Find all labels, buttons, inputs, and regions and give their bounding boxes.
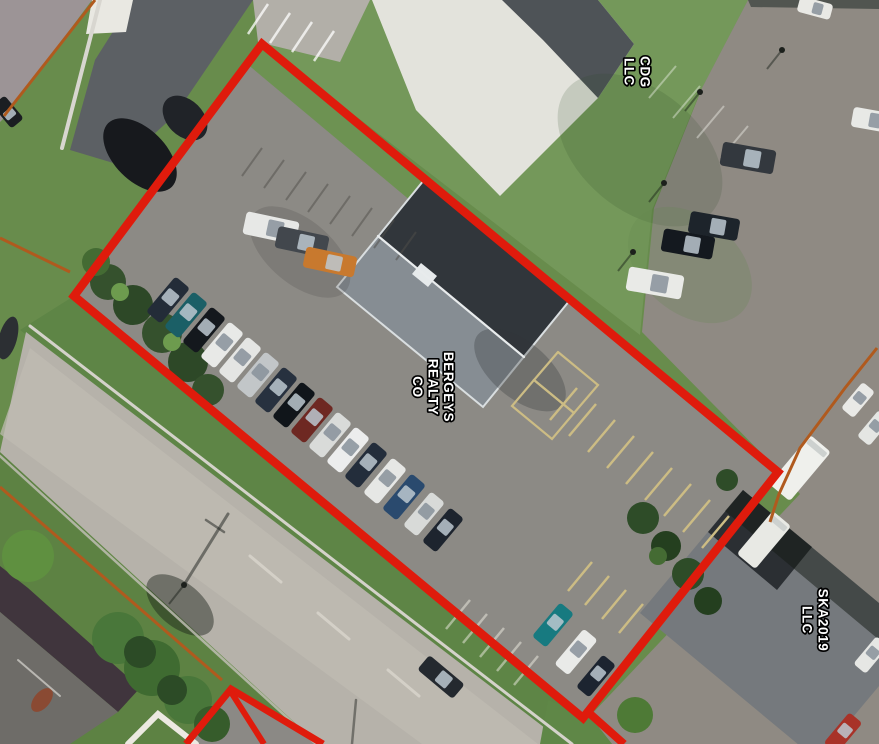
light-pole <box>630 249 636 255</box>
tree <box>716 469 738 491</box>
tree <box>694 587 722 615</box>
tree <box>111 283 129 301</box>
tree <box>2 530 54 582</box>
parcel-label-line: LLC <box>800 606 815 634</box>
parcel-label-cdg-llc: CDG LLC <box>622 56 653 88</box>
tree <box>627 502 659 534</box>
tree <box>617 697 653 733</box>
parcel-label-line: CO <box>410 376 425 397</box>
tree <box>649 547 667 565</box>
parcel-label-line: REALTY <box>426 359 441 416</box>
light-pole <box>661 180 667 186</box>
map-stage: CDG LLC BERGEYS REALTY CO SKA2019 LLC <box>0 0 879 744</box>
light-pole <box>779 47 785 53</box>
aerial-photo: CDG LLC BERGEYS REALTY CO SKA2019 LLC <box>0 0 879 744</box>
tree <box>124 636 156 668</box>
parcel-label-line: CDG <box>638 56 653 88</box>
tree <box>157 675 187 705</box>
parcel-label-line: SKA2019 <box>816 589 831 652</box>
light-pole <box>181 582 187 588</box>
light-pole <box>697 89 703 95</box>
parcel-label-line: BERGEYS <box>441 352 456 422</box>
parcel-label-line: LLC <box>622 58 637 86</box>
